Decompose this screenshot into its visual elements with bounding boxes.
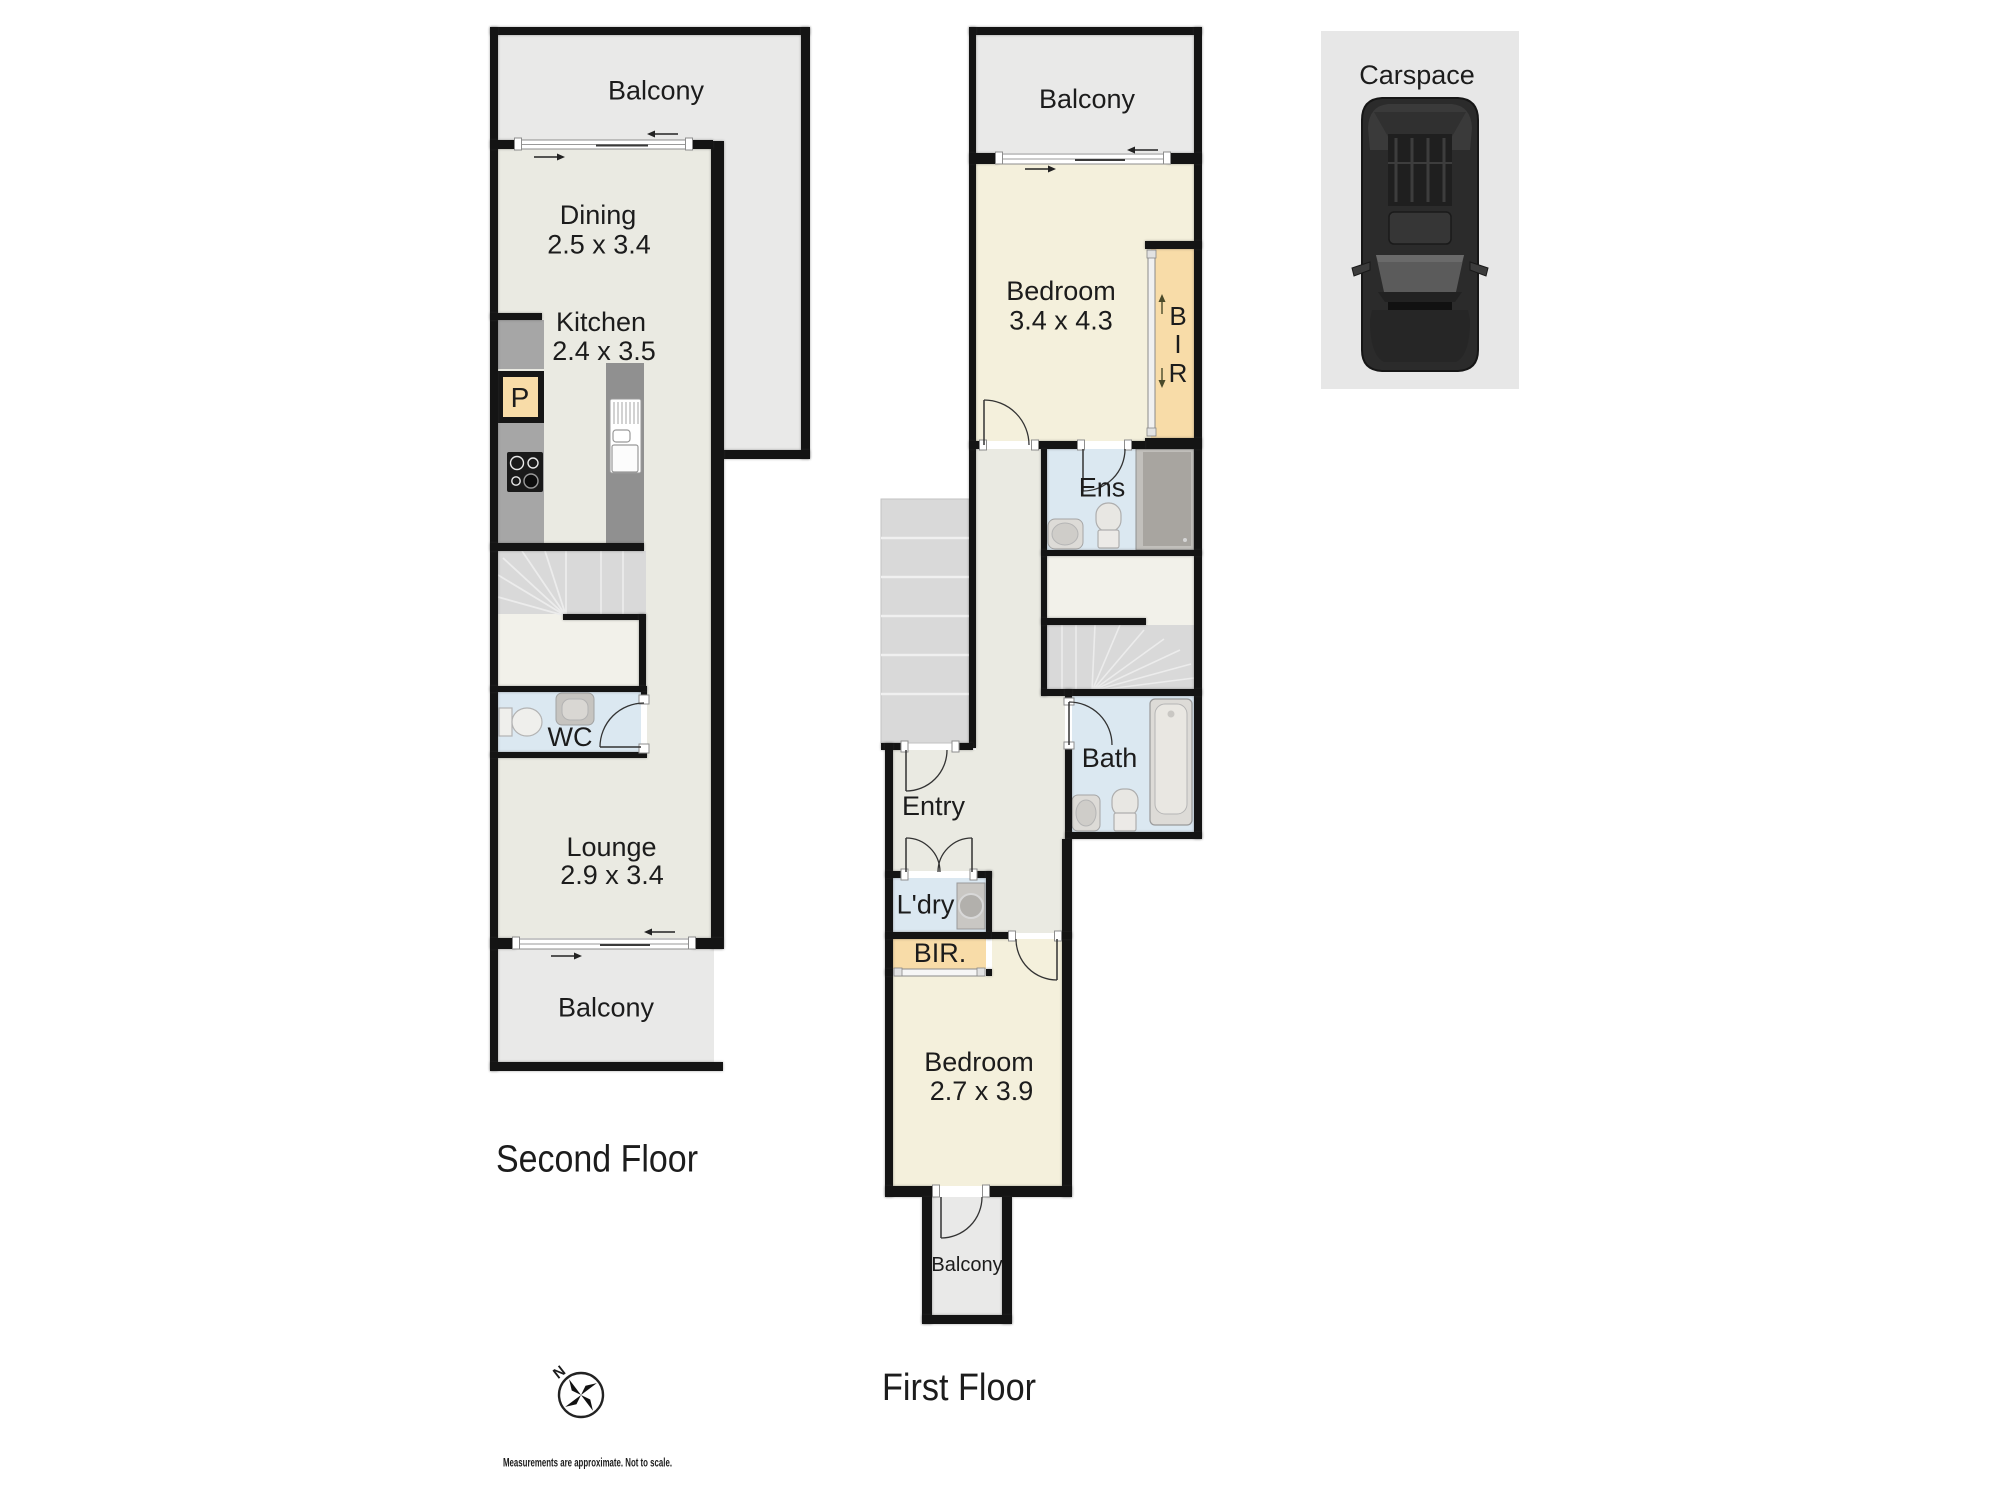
- svg-text:Bedroom: Bedroom: [1006, 276, 1116, 306]
- svg-text:Dining: Dining: [560, 200, 637, 230]
- svg-text:2.9 x 3.4: 2.9 x 3.4: [560, 860, 664, 890]
- svg-text:BIR.: BIR.: [914, 938, 967, 968]
- svg-text:Bath: Bath: [1082, 743, 1138, 773]
- svg-text:Balcony: Balcony: [1039, 84, 1136, 114]
- svg-text:P: P: [511, 382, 530, 413]
- svg-text:R: R: [1169, 358, 1188, 388]
- svg-text:I: I: [1174, 329, 1181, 359]
- svg-text:3.4 x 4.3: 3.4 x 4.3: [1009, 306, 1113, 336]
- svg-text:L'dry: L'dry: [897, 890, 955, 920]
- svg-text:Balcony: Balcony: [558, 993, 655, 1023]
- svg-text:Ens: Ens: [1079, 473, 1126, 503]
- svg-text:B: B: [1169, 301, 1186, 331]
- svg-text:2.7 x 3.9: 2.7 x 3.9: [930, 1076, 1034, 1106]
- svg-text:2.5 x 3.4: 2.5 x 3.4: [547, 230, 651, 260]
- svg-text:Bedroom: Bedroom: [924, 1047, 1034, 1077]
- svg-text:Kitchen: Kitchen: [556, 307, 646, 337]
- svg-text:Balcony: Balcony: [608, 76, 705, 106]
- svg-text:Entry: Entry: [902, 791, 966, 821]
- svg-text:Lounge: Lounge: [566, 832, 656, 862]
- svg-text:Carspace: Carspace: [1359, 60, 1475, 90]
- svg-text:First Floor: First Floor: [882, 1367, 1036, 1409]
- svg-text:Measurements are approximate.: Measurements are approximate. Not to sca…: [503, 1456, 672, 1470]
- svg-text:WC: WC: [548, 722, 593, 752]
- svg-text:Balcony: Balcony: [931, 1254, 1002, 1276]
- svg-text:2.4 x 3.5: 2.4 x 3.5: [552, 336, 656, 366]
- svg-text:Second Floor: Second Floor: [496, 1139, 698, 1181]
